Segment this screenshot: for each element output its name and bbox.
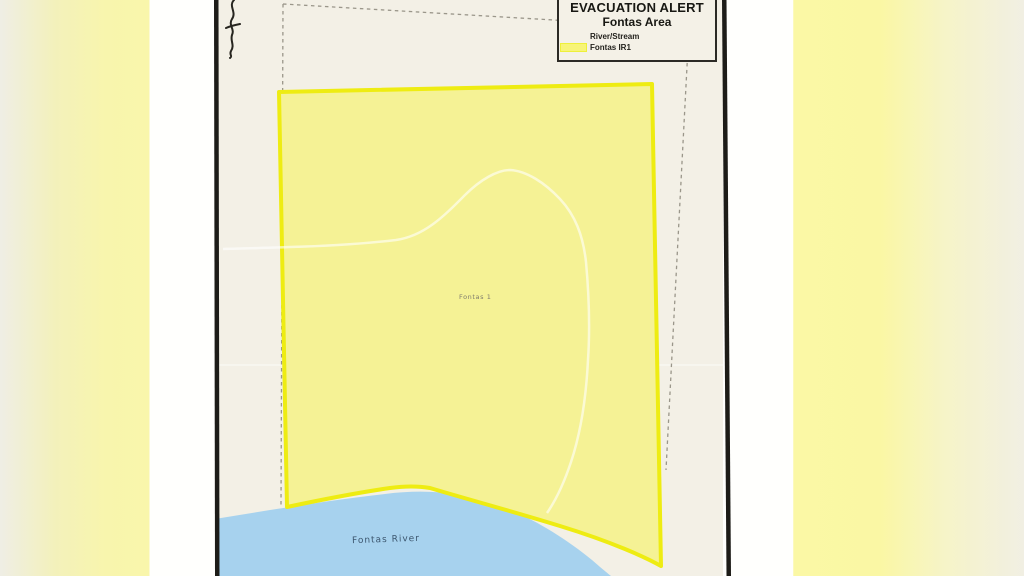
- fontas-ir1-swatch: [560, 43, 587, 52]
- legend-item-fontas-ir1: Fontas IR1: [559, 42, 715, 53]
- legend-item-label: River/Stream: [590, 32, 639, 41]
- area-label-fontas-1: Fontas 1: [459, 293, 492, 301]
- legend-title: EVACUATION ALERT: [559, 1, 715, 15]
- legend-item-label: Fontas IR1: [590, 43, 631, 52]
- legend-box: EVACUATION ALERT Fontas Area River/Strea…: [557, 0, 717, 62]
- river-stream-symbol: [560, 32, 587, 41]
- fontas-ir1-area: [279, 84, 661, 566]
- map-graphic: [0, 0, 1024, 576]
- scanned-map-page: EVACUATION ALERT Fontas Area River/Strea…: [0, 0, 1024, 576]
- legend-rows: River/Stream Fontas IR1: [559, 31, 715, 53]
- legend-subtitle: Fontas Area: [559, 15, 715, 29]
- legend-item-river-stream: River/Stream: [559, 31, 715, 42]
- map-frame-right: [722, 0, 731, 576]
